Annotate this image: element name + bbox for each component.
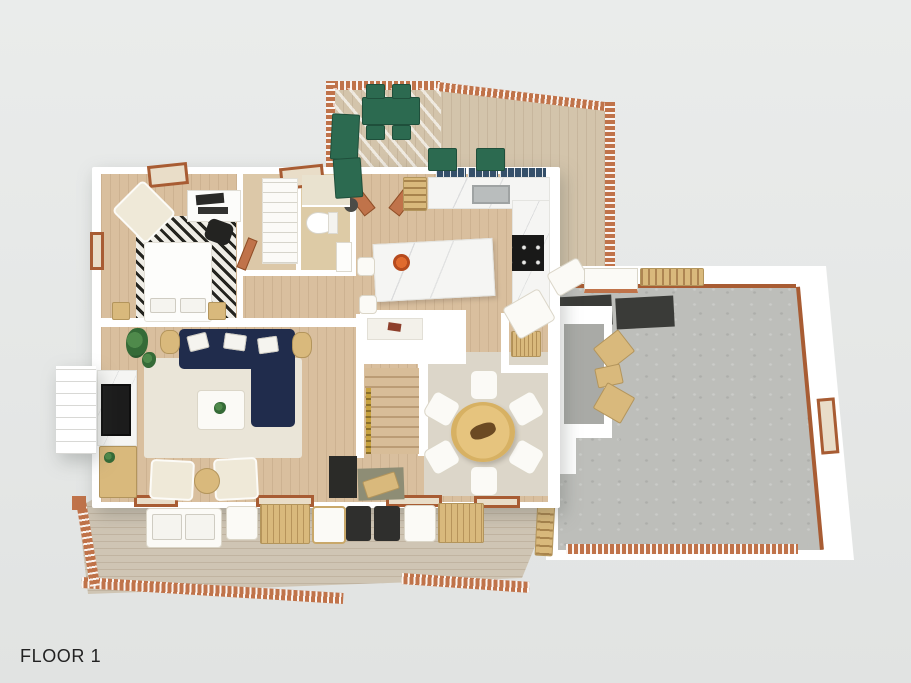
dining-chair-4 (470, 466, 498, 496)
island-stool-2 (359, 295, 377, 314)
floor-plan-canvas: FLOOR 1 (0, 0, 911, 683)
patio-black-chair-1 (346, 506, 371, 541)
side-basket-right (292, 332, 312, 358)
island-stool-1 (357, 257, 375, 276)
deck-dining-chair-1 (366, 84, 385, 99)
stove (512, 235, 544, 271)
patio-chair-3 (404, 505, 436, 542)
wall-dining-right (548, 320, 558, 502)
entry-nook-wall-left (501, 313, 509, 373)
garage-door-threshold (566, 544, 798, 554)
patio-wood-table-2 (438, 503, 484, 543)
sofa-pillow-2 (223, 333, 247, 352)
patio-chair-1 (226, 506, 258, 540)
patio-black-chair-2 (374, 506, 400, 541)
patio-sofa (146, 508, 222, 548)
sofa-pillow-3 (257, 336, 279, 355)
garage-side-threshold (640, 268, 704, 286)
kitchen-island (373, 238, 496, 302)
floor-label: FLOOR 1 (20, 646, 101, 667)
dining-chair-1 (470, 370, 498, 400)
garage-doormat-2 (615, 296, 675, 330)
staircase-steps (365, 368, 419, 454)
side-entry-landing (56, 366, 96, 454)
bed-pillow-2 (180, 298, 206, 313)
entry-nook-wall-bottom (501, 365, 553, 373)
side-basket-left (160, 330, 180, 354)
patio-sofa-cushion-2 (185, 514, 215, 540)
bedroom-skylight-window (147, 162, 189, 188)
bed-pillow-1 (150, 298, 176, 313)
deck-chair-1 (428, 148, 457, 171)
toilet-tank (328, 212, 338, 234)
living-armchair-1 (149, 459, 195, 501)
kitchen-sink (472, 185, 510, 204)
fireplace-screen (101, 384, 131, 436)
patio-sofa-cushion-1 (152, 514, 182, 540)
bedside-basket-1 (112, 302, 130, 320)
wall-bedroom-living (98, 318, 358, 327)
closet-shelving (262, 178, 298, 264)
mudroom-console (329, 456, 357, 498)
garage-wall-bench (584, 268, 638, 293)
island-fruit-bowl (393, 254, 410, 271)
patio-chair-2 (312, 506, 346, 544)
deck-lounger-2 (333, 157, 364, 199)
round-side-table (194, 468, 220, 494)
pony-wall-decor (388, 322, 402, 332)
staircase-gold-banister (366, 388, 371, 454)
bath-vanity (336, 242, 352, 272)
bedroom-left-window (90, 232, 104, 270)
lower-deck-corner-post (72, 496, 86, 510)
deck-dining-table (362, 97, 420, 125)
deck-dining-chair-4 (392, 125, 411, 140)
bedside-basket-2 (208, 302, 226, 320)
deck-dining-chair-3 (366, 125, 385, 140)
deck-chair-2 (476, 148, 505, 171)
desk-keyboard (198, 207, 228, 214)
upper-deck-railing-right (605, 102, 615, 270)
patio-wood-table-1 (260, 504, 310, 544)
deck-dining-chair-2 (392, 84, 411, 99)
deck-lounger-1 (330, 113, 360, 160)
hall-ladder-shelf (403, 177, 427, 211)
deck-ladder (535, 500, 556, 557)
